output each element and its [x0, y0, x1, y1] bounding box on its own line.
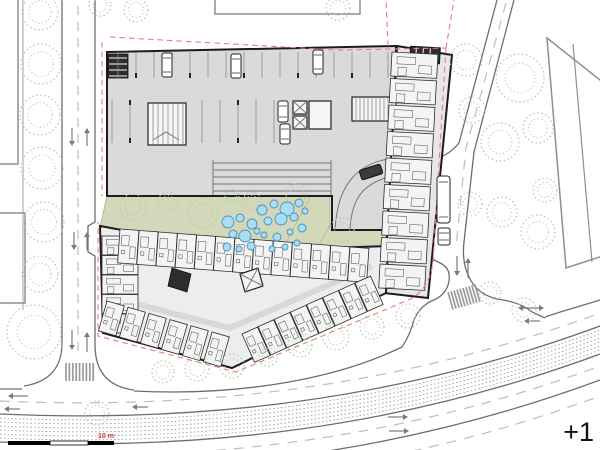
tree-icon: [512, 298, 536, 322]
traffic-arrow-head: [454, 271, 460, 276]
pond-circle-icon: [239, 230, 251, 242]
boundary-line: [386, 0, 388, 46]
traffic-arrow-icon: [389, 428, 409, 434]
traffic-arrow-head: [69, 141, 75, 146]
car-icon: [278, 101, 288, 122]
unit-room: [102, 275, 138, 294]
column-mark: [135, 73, 137, 78]
road-edge-line: [545, 300, 600, 317]
column-mark: [129, 100, 131, 105]
pond-circle-icon: [236, 246, 242, 252]
pond-circle-icon: [298, 224, 306, 232]
unit-room: [328, 246, 349, 281]
car-icon: [162, 53, 172, 77]
traffic-arrow-head: [84, 332, 90, 337]
tree-icon: [22, 0, 58, 30]
traffic-arrow-icon: [71, 232, 77, 250]
car-icon: [280, 124, 290, 144]
tree-icon: [21, 44, 61, 84]
tree-icon: [7, 305, 61, 359]
pond-circle-icon: [270, 200, 278, 208]
pond-circle-icon: [236, 214, 244, 222]
unit-room: [137, 231, 158, 266]
scale-bar-segment: [50, 441, 88, 445]
road-edge-line: [463, 0, 545, 318]
pond-circle-icon: [302, 208, 308, 214]
traffic-arrow-icon: [388, 414, 408, 420]
unit-room: [213, 237, 234, 272]
neighbor-building-right: [547, 38, 600, 268]
boundary-line: [446, 0, 454, 48]
pond-circle-icon: [294, 240, 300, 246]
traffic-arrow-head: [4, 406, 9, 412]
unit-room: [271, 241, 292, 276]
car-icon: [313, 50, 323, 74]
pond-circle-icon: [295, 199, 303, 207]
tree-icon: [20, 95, 60, 135]
unit-room: [388, 105, 435, 131]
unit-room: [175, 234, 196, 269]
pond-circle-icon: [247, 242, 255, 250]
traffic-arrow-icon: [8, 393, 28, 399]
pond-circle-icon: [229, 230, 237, 238]
unit-room: [379, 264, 426, 290]
pond-circle-icon: [222, 216, 234, 228]
traffic-arrow-icon: [84, 232, 90, 250]
tree-icon: [487, 197, 517, 227]
scale-bar-segment: [88, 441, 114, 445]
column-mark: [297, 73, 299, 78]
neighbor-building-top-left: [0, 0, 18, 164]
traffic-arrow-head: [84, 128, 90, 133]
unit-room: [386, 132, 433, 158]
traffic-arrow-icon: [132, 404, 148, 410]
column-mark: [351, 73, 353, 78]
tree-icon: [523, 113, 553, 143]
tree-icon: [22, 256, 58, 292]
unit-room: [348, 247, 369, 282]
traffic-arrow-head: [69, 345, 75, 350]
pond-circle-icon: [269, 246, 275, 252]
unit-room: [156, 232, 177, 267]
traffic-arrow-head: [84, 232, 90, 237]
traffic-arrow-head: [8, 393, 13, 399]
crosswalk-right: [448, 285, 480, 310]
traffic-arrow-head: [403, 414, 408, 420]
garage-ramp: [148, 103, 186, 145]
traffic-arrow-icon: [69, 128, 75, 146]
unit-room: [389, 79, 436, 105]
pond-circle-icon: [254, 228, 260, 234]
tree-icon: [85, 401, 109, 425]
traffic-arrow-head: [524, 318, 529, 324]
scale-bar-segment: [8, 441, 50, 445]
traffic-arrow-icon: [84, 128, 90, 146]
column-mark: [237, 138, 239, 143]
pond-circle-icon: [282, 244, 288, 250]
bus-icon: [437, 176, 450, 223]
column-mark: [243, 73, 245, 78]
unit-room: [385, 158, 432, 184]
traffic-arrow-icon: [524, 318, 540, 324]
pond-circle-icon: [275, 213, 287, 225]
traffic-arrow-head: [404, 428, 409, 434]
unit-room: [194, 235, 215, 270]
neighbor-building-top-center: [215, 0, 360, 14]
traffic-arrow-head: [518, 305, 523, 311]
unit-room: [290, 243, 311, 278]
traffic-arrow-icon: [454, 256, 460, 276]
pond-circle-icon: [261, 232, 267, 238]
site-plan-canvas: 10 m +1: [0, 0, 600, 450]
pond-circle-icon: [273, 233, 281, 241]
unit-room: [118, 229, 139, 264]
road-edge-line: [24, 0, 62, 386]
tree-icon: [21, 147, 63, 189]
pond-circle-icon: [257, 205, 267, 215]
car-icon: [231, 54, 241, 78]
unit-room: [383, 185, 430, 211]
tree-icon: [360, 315, 384, 339]
tree-icon: [124, 0, 148, 22]
traffic-arrow-icon: [4, 406, 20, 412]
tree-icon: [481, 123, 519, 161]
garage-core-room: [309, 101, 331, 129]
tree-icon: [533, 178, 557, 202]
pond-circle-icon: [290, 213, 298, 221]
unit-room: [382, 211, 429, 237]
tree-icon: [459, 97, 485, 123]
road-edge-line: [0, 380, 600, 450]
traffic-arrow-head: [71, 245, 77, 250]
tree-icon: [24, 202, 64, 242]
traffic-arrow-head: [539, 305, 544, 311]
neighbor-building-left: [0, 213, 25, 303]
pond-circle-icon: [223, 243, 231, 251]
pond-circle-icon: [287, 229, 293, 235]
tree-icon: [521, 215, 555, 249]
car-icon: [438, 228, 450, 245]
tree-icon: [152, 361, 174, 383]
unit-room: [391, 52, 438, 78]
column-mark: [189, 73, 191, 78]
traffic-arrow-head: [132, 404, 137, 410]
pond-circle-icon: [247, 219, 257, 229]
tree-icon: [450, 44, 482, 76]
tree-icon: [89, 0, 111, 16]
unit-room: [309, 244, 330, 279]
site-plan-page: 10 m +1: [0, 0, 600, 450]
pond-circle-icon: [264, 217, 272, 225]
tree-icon: [496, 54, 544, 102]
traffic-arrow-icon: [69, 330, 75, 350]
traffic-arrow-icon: [84, 332, 90, 352]
unit-room: [380, 238, 427, 264]
column-mark: [129, 138, 131, 143]
column-mark: [237, 100, 239, 105]
rail-track-line: [0, 346, 600, 436]
scale-label: 10 m: [98, 433, 114, 440]
level-label: +1: [563, 417, 594, 447]
traffic-arrow-head: [465, 258, 471, 263]
